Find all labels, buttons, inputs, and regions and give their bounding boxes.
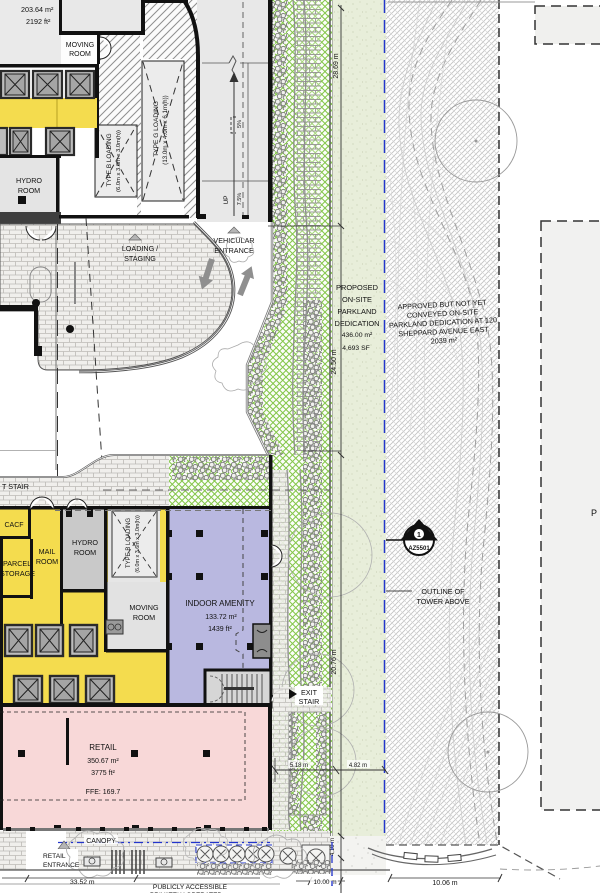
svg-text:TYPE B LOADING: TYPE B LOADING [126, 518, 132, 568]
svg-text:(6.0m x 3.6m x 3.0m(h)): (6.0m x 3.6m x 3.0m(h)) [116, 130, 122, 192]
svg-text:MAIL: MAIL [39, 547, 56, 556]
svg-text:TYPE B LOADING: TYPE B LOADING [106, 133, 113, 186]
svg-text:PUBLICLY ACCESSIBLE: PUBLICLY ACCESSIBLE [153, 884, 228, 891]
svg-text:133.72 m²: 133.72 m² [205, 614, 237, 621]
svg-text:33.52 m: 33.52 m [70, 879, 95, 886]
svg-text:CACF: CACF [4, 522, 23, 529]
svg-text:ON-SITE: ON-SITE [342, 295, 372, 304]
svg-text:STAIR: STAIR [299, 697, 320, 706]
svg-text:PROPOSED: PROPOSED [336, 283, 378, 292]
svg-text:350.67 m²: 350.67 m² [87, 758, 119, 765]
svg-text:28.69 m: 28.69 m [333, 53, 340, 78]
svg-text:DEDICATION: DEDICATION [334, 319, 379, 328]
svg-text:2039 m²: 2039 m² [431, 335, 458, 345]
svg-text:7.5%: 7.5% [237, 193, 243, 206]
svg-text:CANOPY: CANOPY [86, 838, 116, 845]
svg-text:4.10 m: 4.10 m [330, 838, 336, 856]
svg-text:STORAGE: STORAGE [0, 569, 35, 578]
svg-text:RETAIL: RETAIL [89, 743, 117, 752]
svg-text:10.00 m: 10.00 m [313, 879, 336, 886]
svg-text:PARCEL: PARCEL [3, 559, 31, 568]
svg-text:4,693 SF: 4,693 SF [342, 345, 370, 352]
svg-text:FFE: 169.7: FFE: 169.7 [86, 789, 121, 796]
svg-text:T STAIR: T STAIR [2, 482, 29, 491]
svg-text:EXIT: EXIT [301, 688, 318, 697]
svg-text:P: P [591, 508, 597, 518]
svg-text:RETAIL: RETAIL [43, 853, 66, 860]
svg-text:10.06 m: 10.06 m [432, 880, 457, 887]
svg-text:203.64 m²: 203.64 m² [21, 5, 54, 14]
svg-text:MOVING: MOVING [66, 42, 94, 49]
svg-text:AZ5501: AZ5501 [408, 546, 430, 552]
svg-text:HYDRO: HYDRO [16, 176, 42, 185]
svg-text:1439 ft²: 1439 ft² [208, 626, 232, 633]
svg-text:2192 ft²: 2192 ft² [26, 17, 51, 26]
svg-text:(13.0m x 4.0m x 6.1m(h)): (13.0m x 4.0m x 6.1m(h)) [162, 95, 169, 164]
svg-text:OUTLINE OF: OUTLINE OF [421, 587, 465, 596]
svg-text:5%: 5% [237, 120, 243, 128]
svg-text:TYPE G LOADING: TYPE G LOADING [153, 101, 160, 157]
svg-text:ROOM: ROOM [69, 51, 91, 58]
svg-text:STAGING: STAGING [124, 254, 156, 263]
svg-text:20.76 m: 20.76 m [331, 649, 338, 674]
svg-text:PARKLAND: PARKLAND [337, 307, 376, 316]
svg-text:1: 1 [417, 532, 421, 539]
svg-text:LOADING /: LOADING / [122, 244, 158, 253]
svg-text:ROOM: ROOM [74, 548, 96, 557]
svg-text:ENTRANCE: ENTRANCE [214, 246, 254, 255]
svg-text:INDOOR AMENITY: INDOOR AMENITY [185, 599, 255, 608]
svg-text:4.82 m: 4.82 m [349, 763, 367, 769]
svg-text:ENTRANCE: ENTRANCE [43, 862, 80, 869]
svg-text:3775 ft²: 3775 ft² [91, 770, 115, 777]
svg-text:HYDRO: HYDRO [72, 538, 98, 547]
svg-text:436.00 m²: 436.00 m² [342, 332, 373, 339]
svg-text:ROOM: ROOM [18, 186, 40, 195]
svg-text:5.18 m: 5.18 m [290, 763, 308, 769]
svg-text:24.50 m: 24.50 m [331, 349, 338, 374]
svg-text:(6.0m x 3.6m x 3.0m(h)): (6.0m x 3.6m x 3.0m(h)) [135, 515, 141, 573]
svg-text:ROOM: ROOM [36, 557, 58, 566]
svg-text:UP: UP [223, 195, 230, 204]
svg-text:MOVING: MOVING [129, 603, 159, 612]
svg-text:ROOM: ROOM [133, 613, 155, 622]
svg-text:TOWER ABOVE: TOWER ABOVE [417, 597, 470, 606]
